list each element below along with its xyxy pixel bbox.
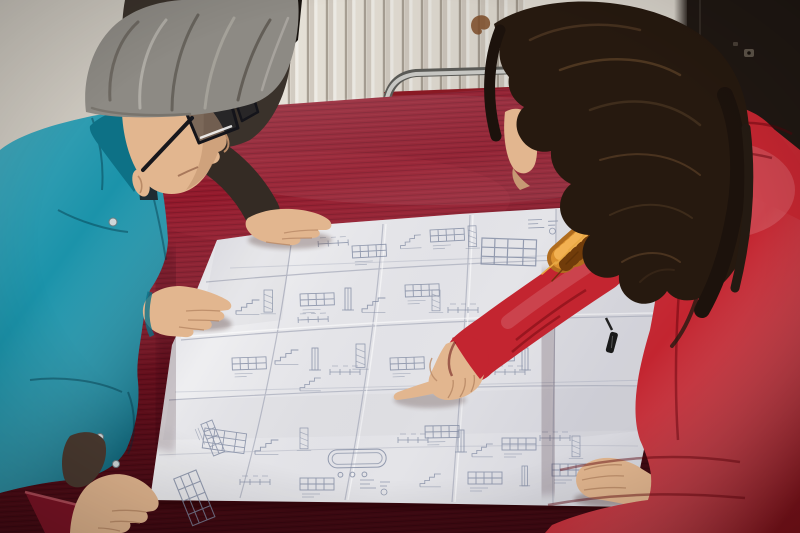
photo-canvas bbox=[0, 0, 800, 533]
photo-vignette bbox=[0, 0, 800, 533]
